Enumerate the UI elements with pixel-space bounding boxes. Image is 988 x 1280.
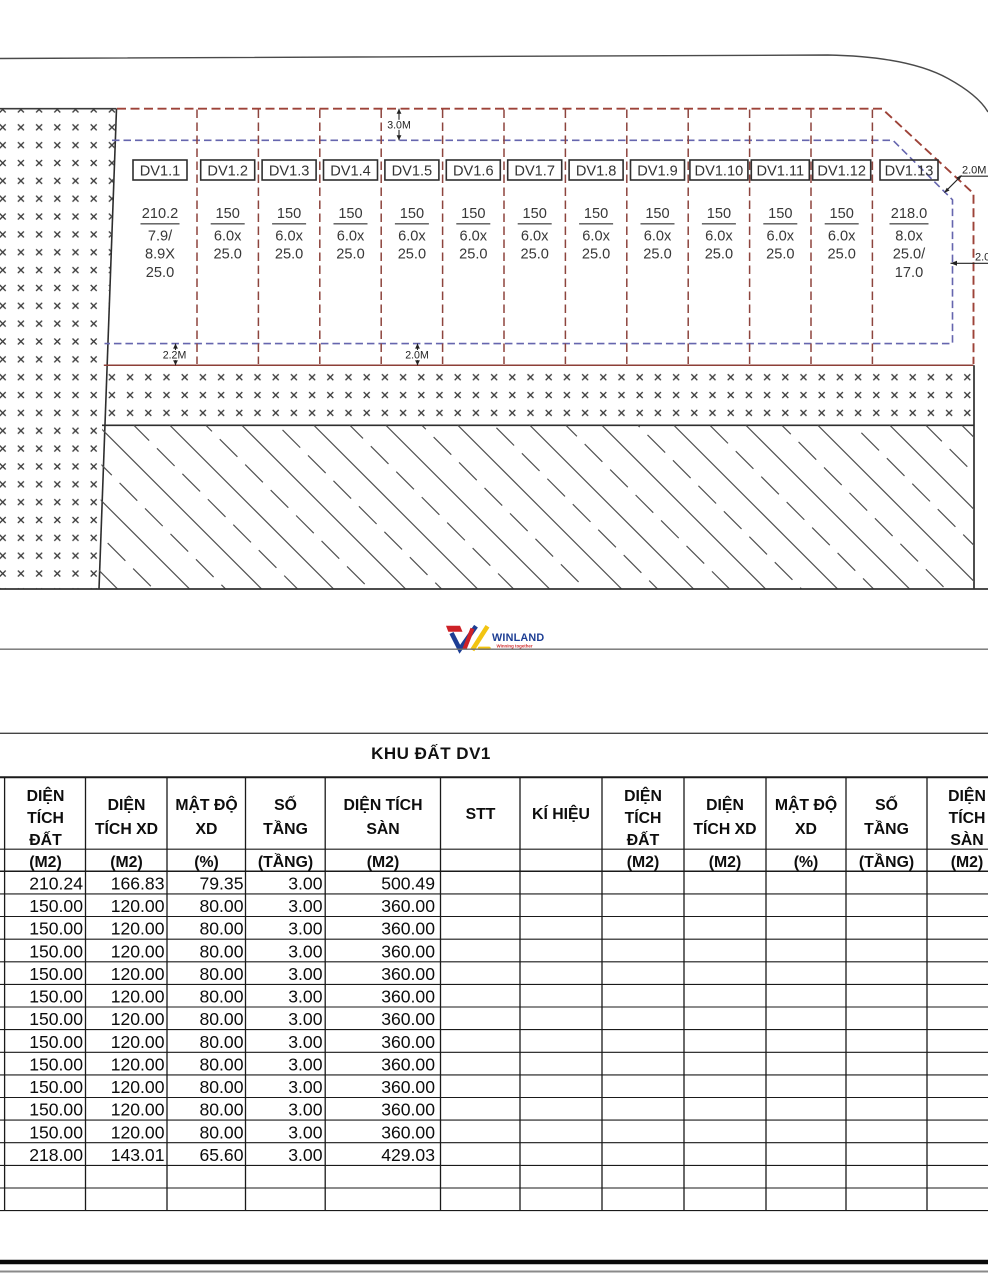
svg-text:DIỆN TÍCH: DIỆN TÍCH — [344, 795, 423, 814]
svg-text:120.00: 120.00 — [111, 1077, 165, 1097]
svg-text:6.0x: 6.0x — [705, 229, 733, 245]
svg-text:6.0x: 6.0x — [460, 229, 488, 245]
svg-text:DV1.4: DV1.4 — [330, 164, 371, 180]
svg-text:3.00: 3.00 — [288, 874, 322, 894]
svg-text:(TẦNG): (TẦNG) — [258, 852, 313, 871]
svg-text:DV1.1: DV1.1 — [140, 164, 181, 180]
svg-text:3.0M: 3.0M — [387, 119, 411, 131]
svg-text:150: 150 — [768, 206, 792, 222]
svg-text:150.00: 150.00 — [29, 1122, 83, 1142]
svg-text:150.00: 150.00 — [29, 941, 83, 961]
svg-text:120.00: 120.00 — [111, 1009, 165, 1029]
svg-text:DV1.6: DV1.6 — [453, 164, 494, 180]
svg-text:25.0: 25.0 — [398, 247, 426, 263]
svg-text:WINLAND: WINLAND — [492, 632, 544, 644]
svg-text:3.00: 3.00 — [288, 1100, 322, 1120]
svg-text:120.00: 120.00 — [111, 1032, 165, 1052]
svg-text:8.0x: 8.0x — [895, 229, 923, 245]
svg-text:150: 150 — [338, 206, 362, 222]
svg-text:500.49: 500.49 — [381, 874, 435, 894]
svg-text:80.00: 80.00 — [199, 941, 243, 961]
svg-text:218.00: 218.00 — [29, 1145, 83, 1165]
svg-text:ĐẤT: ĐẤT — [29, 830, 62, 849]
svg-text:3.00: 3.00 — [288, 1055, 322, 1075]
svg-text:KHU ĐẤT DV1: KHU ĐẤT DV1 — [371, 744, 491, 763]
svg-text:3.00: 3.00 — [288, 896, 322, 916]
svg-text:80.00: 80.00 — [199, 1100, 243, 1120]
svg-text:DV1.11: DV1.11 — [757, 164, 805, 180]
svg-text:6.0x: 6.0x — [644, 229, 672, 245]
svg-text:150: 150 — [523, 206, 547, 222]
svg-text:80.00: 80.00 — [199, 1077, 243, 1097]
svg-text:6.0x: 6.0x — [828, 229, 856, 245]
svg-text:150.00: 150.00 — [29, 987, 83, 1007]
svg-text:2.0M: 2.0M — [405, 350, 429, 362]
svg-text:120.00: 120.00 — [111, 1055, 165, 1075]
svg-text:3.00: 3.00 — [288, 1145, 322, 1165]
svg-text:80.00: 80.00 — [199, 964, 243, 984]
svg-text:XD: XD — [795, 821, 817, 838]
svg-text:STT: STT — [466, 806, 496, 823]
svg-text:120.00: 120.00 — [111, 987, 165, 1007]
svg-text:(%): (%) — [194, 854, 219, 871]
svg-text:80.00: 80.00 — [199, 919, 243, 939]
svg-text:25.0: 25.0 — [459, 247, 487, 263]
svg-text:TẦNG: TẦNG — [263, 819, 308, 838]
svg-text:DV1.2: DV1.2 — [207, 164, 248, 180]
svg-text:150: 150 — [277, 206, 301, 222]
svg-text:25.0: 25.0 — [827, 247, 855, 263]
svg-text:8.9X: 8.9X — [145, 247, 175, 263]
svg-text:6.0x: 6.0x — [337, 229, 365, 245]
svg-text:360.00: 360.00 — [381, 919, 435, 939]
svg-text:DIỆN: DIỆN — [108, 795, 146, 814]
svg-text:150: 150 — [461, 206, 485, 222]
svg-text:DIỆN: DIỆN — [948, 786, 986, 805]
svg-text:MẬT ĐỘ: MẬT ĐỘ — [175, 795, 237, 814]
svg-text:80.00: 80.00 — [199, 1122, 243, 1142]
svg-text:80.00: 80.00 — [199, 1009, 243, 1029]
svg-text:120.00: 120.00 — [111, 919, 165, 939]
svg-text:6.0x: 6.0x — [521, 229, 549, 245]
svg-text:6.0x: 6.0x — [767, 229, 795, 245]
svg-text:150.00: 150.00 — [29, 1077, 83, 1097]
svg-text:150: 150 — [645, 206, 669, 222]
svg-text:6.0x: 6.0x — [398, 229, 426, 245]
svg-text:79.35: 79.35 — [199, 874, 243, 894]
svg-text:DV1.13: DV1.13 — [885, 164, 934, 180]
svg-text:150: 150 — [584, 206, 608, 222]
svg-text:150: 150 — [830, 206, 854, 222]
svg-text:2.0M: 2.0M — [975, 252, 988, 264]
svg-text:DV1.9: DV1.9 — [637, 164, 678, 180]
svg-text:166.83: 166.83 — [111, 874, 165, 894]
svg-text:3.00: 3.00 — [288, 1032, 322, 1052]
svg-text:TẦNG: TẦNG — [864, 819, 909, 838]
svg-text:Winning together: Winning together — [497, 644, 533, 649]
svg-text:360.00: 360.00 — [381, 987, 435, 1007]
svg-text:(M2): (M2) — [709, 854, 741, 871]
svg-text:210.2: 210.2 — [142, 206, 179, 222]
svg-text:SỐ: SỐ — [875, 794, 898, 814]
svg-text:360.00: 360.00 — [381, 964, 435, 984]
svg-text:80.00: 80.00 — [199, 1032, 243, 1052]
svg-text:150.00: 150.00 — [29, 919, 83, 939]
svg-text:3.00: 3.00 — [288, 1077, 322, 1097]
svg-text:7.9/: 7.9/ — [148, 229, 173, 245]
svg-text:(M2): (M2) — [367, 854, 399, 871]
svg-text:DV1.5: DV1.5 — [392, 164, 433, 180]
svg-text:SÀN: SÀN — [366, 819, 399, 838]
svg-text:TÍCH: TÍCH — [625, 808, 662, 827]
svg-text:XD: XD — [196, 821, 218, 838]
svg-text:210.24: 210.24 — [29, 874, 83, 894]
svg-text:(TẦNG): (TẦNG) — [859, 852, 914, 871]
svg-text:25.0: 25.0 — [766, 247, 794, 263]
svg-text:(M2): (M2) — [627, 854, 659, 871]
svg-text:218.0: 218.0 — [891, 206, 928, 222]
svg-text:(%): (%) — [794, 854, 819, 871]
svg-text:DV1.7: DV1.7 — [514, 164, 555, 180]
svg-text:DV1.12: DV1.12 — [817, 164, 866, 180]
svg-text:2.0M: 2.0M — [962, 165, 986, 177]
svg-text:150.00: 150.00 — [29, 964, 83, 984]
svg-text:6.0x: 6.0x — [214, 229, 242, 245]
svg-text:360.00: 360.00 — [381, 1122, 435, 1142]
svg-text:3.00: 3.00 — [288, 941, 322, 961]
svg-text:120.00: 120.00 — [111, 964, 165, 984]
svg-text:25.0: 25.0 — [643, 247, 671, 263]
svg-text:65.60: 65.60 — [199, 1145, 243, 1165]
svg-text:3.00: 3.00 — [288, 919, 322, 939]
svg-text:360.00: 360.00 — [381, 1077, 435, 1097]
svg-text:80.00: 80.00 — [199, 896, 243, 916]
svg-text:360.00: 360.00 — [381, 1032, 435, 1052]
svg-text:150: 150 — [707, 206, 731, 222]
svg-text:SÀN: SÀN — [950, 830, 983, 849]
svg-text:360.00: 360.00 — [381, 941, 435, 961]
svg-text:DIỆN: DIỆN — [624, 786, 662, 805]
svg-text:2.2M: 2.2M — [163, 350, 187, 362]
svg-text:(M2): (M2) — [951, 854, 983, 871]
svg-text:3.00: 3.00 — [288, 1009, 322, 1029]
svg-text:360.00: 360.00 — [381, 1100, 435, 1120]
svg-text:150.00: 150.00 — [29, 1100, 83, 1120]
svg-text:150.00: 150.00 — [29, 1055, 83, 1075]
svg-text:DV1.10: DV1.10 — [695, 164, 744, 180]
svg-text:3.00: 3.00 — [288, 987, 322, 1007]
svg-text:25.0: 25.0 — [146, 265, 174, 281]
svg-text:25.0: 25.0 — [520, 247, 548, 263]
svg-text:6.0x: 6.0x — [275, 229, 303, 245]
svg-text:25.0: 25.0 — [336, 247, 364, 263]
svg-text:MẬT ĐỘ: MẬT ĐỘ — [775, 795, 837, 814]
svg-text:25.0: 25.0 — [213, 247, 241, 263]
svg-text:25.0/: 25.0/ — [893, 247, 926, 263]
svg-text:360.00: 360.00 — [381, 896, 435, 916]
svg-text:150.00: 150.00 — [29, 1032, 83, 1052]
svg-text:TÍCH: TÍCH — [27, 808, 64, 827]
svg-text:150: 150 — [400, 206, 424, 222]
svg-text:(M2): (M2) — [110, 854, 142, 871]
svg-text:3.00: 3.00 — [288, 1122, 322, 1142]
svg-text:DIỆN: DIỆN — [27, 786, 65, 805]
svg-text:25.0: 25.0 — [582, 247, 610, 263]
svg-text:120.00: 120.00 — [111, 1122, 165, 1142]
svg-text:150.00: 150.00 — [29, 896, 83, 916]
svg-text:6.0x: 6.0x — [582, 229, 610, 245]
svg-text:429.03: 429.03 — [381, 1145, 435, 1165]
svg-text:KÍ HIỆU: KÍ HIỆU — [532, 804, 590, 823]
svg-text:DV1.3: DV1.3 — [269, 164, 310, 180]
svg-text:80.00: 80.00 — [199, 1055, 243, 1075]
svg-text:17.0: 17.0 — [895, 265, 923, 281]
svg-text:150.00: 150.00 — [29, 1009, 83, 1029]
svg-text:120.00: 120.00 — [111, 896, 165, 916]
svg-text:TÍCH XD: TÍCH XD — [693, 819, 756, 838]
svg-text:DV1.8: DV1.8 — [576, 164, 617, 180]
svg-text:120.00: 120.00 — [111, 1100, 165, 1120]
svg-text:ĐẤT: ĐẤT — [627, 830, 660, 849]
svg-text:120.00: 120.00 — [111, 941, 165, 961]
svg-text:TÍCH: TÍCH — [949, 808, 986, 827]
svg-text:143.01: 143.01 — [111, 1145, 165, 1165]
svg-text:360.00: 360.00 — [381, 1055, 435, 1075]
svg-text:150: 150 — [216, 206, 240, 222]
svg-text:(M2): (M2) — [29, 854, 61, 871]
svg-text:80.00: 80.00 — [199, 987, 243, 1007]
svg-text:3.00: 3.00 — [288, 964, 322, 984]
svg-text:SỐ: SỐ — [274, 794, 297, 814]
svg-text:TÍCH XD: TÍCH XD — [95, 819, 158, 838]
svg-text:DIỆN: DIỆN — [706, 795, 744, 814]
svg-text:25.0: 25.0 — [275, 247, 303, 263]
svg-text:360.00: 360.00 — [381, 1009, 435, 1029]
svg-text:25.0: 25.0 — [705, 247, 733, 263]
